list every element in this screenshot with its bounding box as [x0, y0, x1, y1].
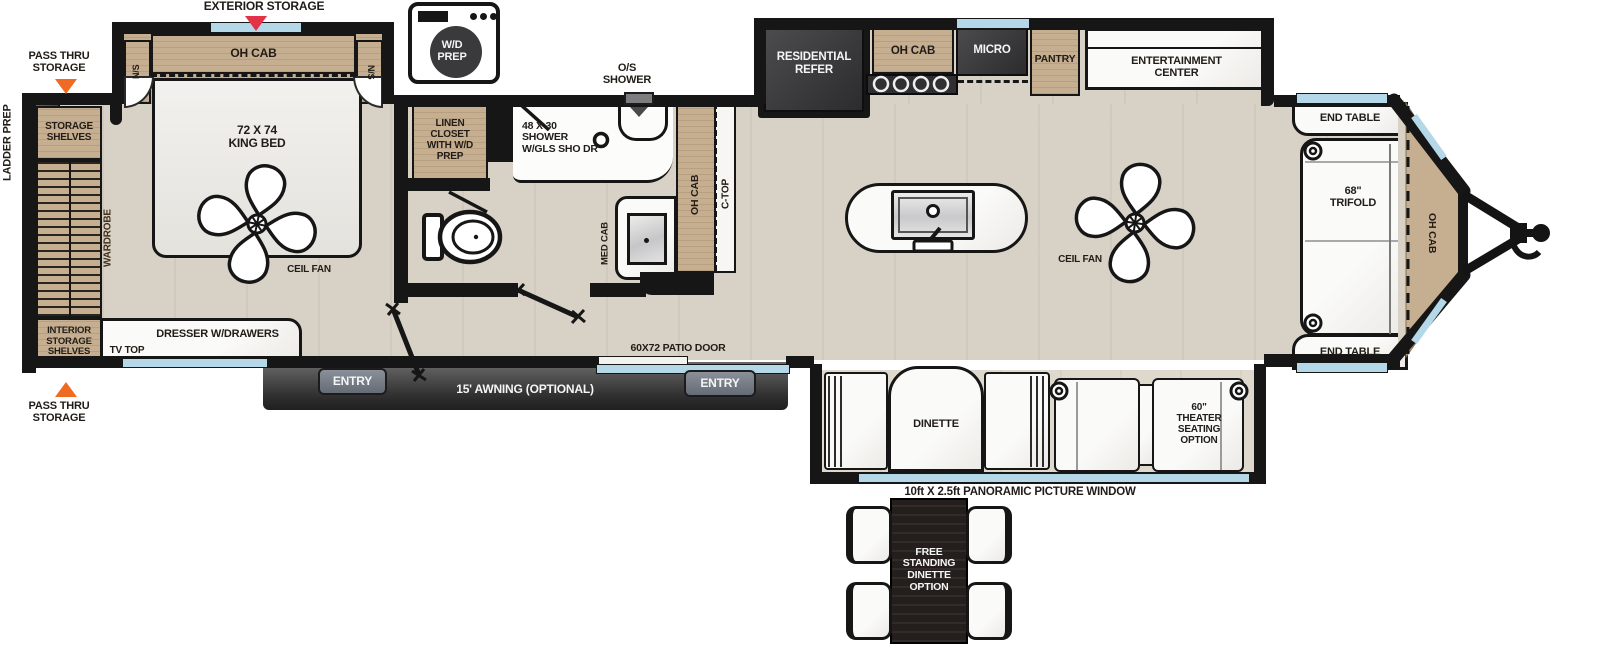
- microwave-dash: [958, 80, 1028, 83]
- med-cab-vanity: [615, 196, 677, 280]
- bath-bottom-wall-right: [590, 283, 646, 297]
- wardrobe-label: WARDROBE: [100, 192, 116, 284]
- nightstand-left-label: N/S: [127, 46, 147, 98]
- bedroom-slide-wall-left: [112, 22, 124, 104]
- ladder-prep-label: LADDER PREP: [0, 96, 15, 190]
- trifold-label: 68" TRIFOLD: [1310, 182, 1396, 212]
- cooktop: [866, 74, 958, 95]
- living-slide-wall-right: [1254, 364, 1266, 484]
- nightstand-right-label: N/S: [360, 46, 380, 98]
- entry-left-label: ENTRY: [333, 375, 372, 388]
- tv-top-label: TV TOP: [103, 343, 151, 357]
- pantry-label: PANTRY: [1026, 50, 1084, 70]
- microwave-label: MICRO: [956, 40, 1028, 60]
- washer-knob-icon: [490, 13, 497, 20]
- front-overhead-cabinet-label: OH CAB: [1414, 196, 1448, 270]
- bedroom-ceil-fan-label: CEIL FAN: [280, 263, 338, 275]
- floorplan-canvas: STORAGE SHELVES WARDROBE INTERIOR STORAG…: [0, 0, 1600, 656]
- island-sink: [891, 190, 975, 240]
- end-table-top-label: END TABLE: [1292, 108, 1408, 128]
- theater-seat-left: [1054, 378, 1140, 472]
- pass-thru-top-label: PASS THRU STORAGE: [16, 48, 102, 76]
- kitchen-overhead-cabinet-label: OH CAB: [872, 34, 954, 68]
- washer-control-panel-icon: [418, 11, 448, 22]
- end-table-bottom-label: END TABLE: [1292, 342, 1408, 362]
- panoramic-window-label: 10ft X 2.5ft PANORAMIC PICTURE WINDOW: [840, 485, 1200, 500]
- closet-bottom-wall: [408, 178, 490, 191]
- refrigerator-label: RESIDENTIAL REFER: [764, 44, 864, 84]
- front-bottom-window: [1296, 362, 1388, 373]
- panoramic-picture-window: [858, 473, 1250, 483]
- counter-overhead-cabinet-label: OH CAB: [684, 156, 708, 234]
- bottom-wall-mid: [300, 356, 598, 368]
- dinette-bench-left-back: [828, 376, 844, 467]
- washer-knob-icon: [470, 13, 477, 20]
- exterior-storage-label: EXTERIOR STORAGE: [188, 0, 340, 14]
- hitch-icon: [1463, 194, 1550, 272]
- living-slide-wall-left: [810, 364, 822, 484]
- interior-storage-label: INTERIOR STORAGE SHELVES: [36, 320, 102, 364]
- outside-shower-fixture-icon: [624, 92, 654, 105]
- sink-drain-icon: [644, 238, 649, 243]
- wardrobe-rod: [69, 162, 71, 316]
- theater-seating-label: 60" THEATER SEATING OPTION: [1158, 394, 1240, 454]
- med-cab-label: MED CAB: [598, 208, 613, 280]
- entry-right-label: ENTRY: [700, 377, 739, 390]
- free-dinette-label: FREE STANDING DINETTE OPTION: [890, 540, 968, 600]
- dinette-chair: [846, 506, 892, 564]
- exterior-storage-marker-icon: [245, 16, 267, 31]
- front-top-window: [1296, 93, 1388, 104]
- pass-thru-top-marker-icon: [55, 79, 77, 94]
- bedroom-bath-wall: [394, 105, 408, 303]
- pass-thru-bottom-label: PASS THRU STORAGE: [12, 398, 106, 426]
- nose-window-top: [1414, 116, 1444, 158]
- bedroom-overhead-cabinet-label: OH CAB: [151, 38, 356, 70]
- entertainment-center-label: ENTERTAINMENT CENTER: [1085, 48, 1268, 86]
- kitchen-window: [956, 18, 1030, 29]
- sofa-back-line: [1389, 144, 1391, 334]
- countertop-label: C-TOP: [717, 162, 735, 226]
- dinette-bench-right: [984, 372, 1050, 470]
- pass-thru-bottom-marker-icon: [55, 382, 77, 397]
- king-bed: [152, 78, 362, 258]
- linen-closet-label: LINEN CLOSET WITH W/D PREP: [412, 103, 488, 177]
- closet-shower-wall: [487, 98, 513, 162]
- wd-prep-label: W/D PREP: [426, 36, 478, 66]
- vanity-sink: [627, 213, 667, 265]
- rear-wall: [22, 93, 36, 373]
- wardrobe-cabinet: [36, 160, 102, 318]
- entry-door-right: ENTRY: [684, 370, 756, 397]
- rear-top-wall: [22, 93, 122, 105]
- living-ceil-fan-label: CEIL FAN: [1050, 253, 1110, 265]
- dinette-bench-left: [824, 372, 888, 470]
- bedroom-slide-wall-right: [382, 22, 394, 104]
- awning-label: 15' AWNING (OPTIONAL): [380, 382, 670, 398]
- counter-bottom-wall: [640, 272, 714, 295]
- island-sink-basin: [898, 197, 968, 233]
- trifold-sofa: [1300, 138, 1408, 336]
- dinette-bench-right-back: [1030, 376, 1046, 467]
- dinette-chair: [966, 506, 1012, 564]
- theater-seat-seam: [1076, 382, 1078, 470]
- shower-label: 48 X 30 SHOWER W/GLS SHO DR: [522, 114, 614, 162]
- storage-shelves-label: STORAGE SHELVES: [36, 110, 102, 154]
- king-bed-label: 72 X 74 KING BED: [182, 120, 332, 154]
- dinette-chair: [846, 582, 892, 640]
- dinette-label: DINETTE: [888, 416, 984, 432]
- bedroom-bottom-window: [122, 358, 268, 368]
- outside-shower-label: O/S SHOWER: [592, 60, 662, 88]
- entry-door-left: ENTRY: [318, 368, 387, 395]
- nose-window-bottom: [1414, 300, 1444, 342]
- patio-door-label: 60X72 PATIO DOOR: [616, 342, 740, 355]
- theater-console: [1138, 384, 1154, 466]
- dresser-label: DRESSER W/DRAWERS: [145, 326, 290, 342]
- bath-bottom-wall-left: [408, 283, 518, 297]
- dinette-chair: [966, 582, 1012, 640]
- washer-knob-icon: [480, 13, 487, 20]
- bedroom-cabinet-dash: [151, 74, 356, 77]
